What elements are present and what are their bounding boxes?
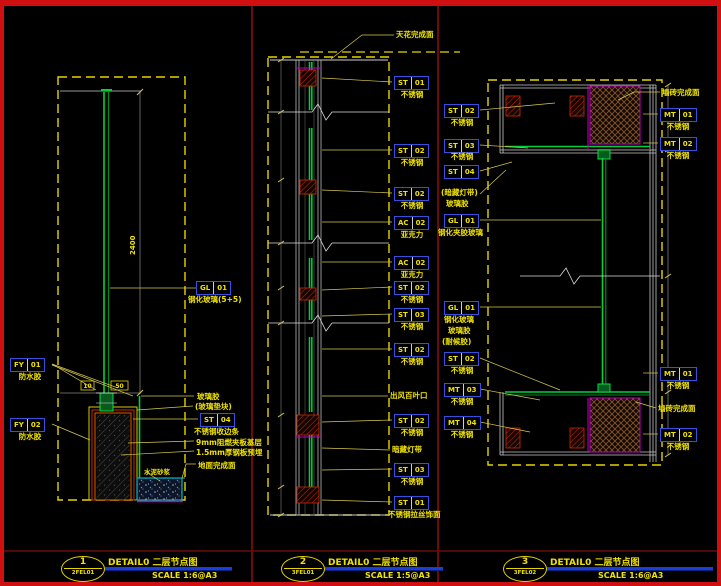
material-tag-fy01: FY01	[10, 358, 45, 372]
detail-number-bubble-1: 1 2FEL01	[61, 556, 105, 582]
material-tag: ST01	[394, 496, 429, 510]
material-tag: ST03	[394, 308, 429, 322]
detail-ref: 2FEL01	[62, 570, 104, 576]
tag-caption: 不锈钢	[440, 151, 484, 162]
material-tag: AC02	[394, 216, 429, 230]
material-tag: MT02	[660, 428, 697, 442]
annotation-steel: 1.5mm厚钢板预埋	[196, 447, 262, 458]
material-tag: ST02	[444, 104, 479, 118]
detail-number-bubble-2: 2 3FEL01	[281, 556, 325, 582]
tag-caption: 不锈钢	[390, 356, 434, 367]
detail-ref: 3FEL02	[504, 570, 546, 576]
annotation-floor: 地面完成面	[198, 460, 236, 471]
annotation-light: 暗藏灯带	[392, 444, 422, 455]
material-tag-fy02: FY02	[10, 418, 45, 432]
tag-caption: 不锈钢	[390, 321, 434, 332]
annotation-ceiling: 天花完成面	[396, 29, 434, 40]
annotation-mortar: 水泥砂浆	[144, 466, 170, 476]
material-tag: ST03	[394, 463, 429, 477]
material-tag: MT01	[660, 367, 697, 381]
tag-caption: 玻璃胶	[448, 325, 471, 336]
material-tag: ST02	[394, 414, 429, 428]
tag-caption: 不锈钢	[390, 294, 434, 305]
material-tag-gl01: GL01	[196, 281, 231, 295]
detail-number: 2	[282, 557, 324, 567]
bubble-divider	[506, 568, 544, 569]
tag-caption: 不锈钢	[390, 427, 434, 438]
title-underline-bar	[547, 567, 713, 570]
material-tag: GL01	[444, 214, 479, 228]
tag-caption: 不锈钢	[390, 476, 434, 487]
material-tag: ST02	[394, 281, 429, 295]
annotation-wall-top: 墙砖完成面	[662, 87, 700, 98]
material-tag: ST02	[394, 187, 429, 201]
tag-caption: 不锈钢	[390, 157, 434, 168]
bubble-divider	[64, 568, 102, 569]
tag-caption: 玻璃胶	[446, 198, 469, 209]
tag-caption: (耐候胶)	[442, 336, 471, 347]
material-tag: MT02	[660, 137, 697, 151]
tag-caption: 不锈钢	[656, 150, 700, 161]
detail-scale-2: SCALE 1:5@A3	[365, 571, 430, 580]
tag-caption: 防水胶	[6, 431, 54, 442]
drawing-linework: 2400 10 50	[0, 0, 721, 586]
tag-caption: 钢化玻璃(5+5)	[188, 294, 242, 305]
dim-b: 50	[115, 383, 123, 390]
title-underline-bar	[325, 567, 443, 570]
material-tag-st04: ST04	[200, 413, 235, 427]
tag-caption: 不锈钢	[440, 429, 484, 440]
detail-scale-3: SCALE 1:6@A3	[598, 571, 663, 580]
tag-caption: 不锈钢	[390, 200, 434, 211]
tag-caption: 不锈钢	[440, 365, 484, 376]
material-tag: MT01	[660, 108, 697, 122]
material-tag: ST02	[444, 352, 479, 366]
material-tag: ST02	[394, 144, 429, 158]
cad-sheet: 2400 10 50	[0, 0, 721, 586]
tag-caption: 不锈钢收边条	[194, 426, 239, 437]
tag-caption: 不锈钢	[440, 396, 484, 407]
material-tag: AC02	[394, 256, 429, 270]
annotation-wall-mid: 墙砖完成面	[658, 403, 696, 414]
detail-number: 3	[504, 557, 546, 567]
material-tag: ST02	[394, 343, 429, 357]
tag-caption: 不锈钢拉丝饰面	[388, 509, 441, 520]
material-tag: ST04	[444, 165, 479, 179]
tag-caption: 不锈钢	[390, 89, 434, 100]
tag-caption: (暗藏灯带)	[441, 187, 478, 198]
tag-caption: 防水胶	[6, 371, 54, 382]
detail-scale-1: SCALE 1:6@A3	[152, 571, 217, 580]
annotation-vent: 出风百叶口	[390, 390, 428, 401]
panel-3-linework	[480, 80, 671, 465]
material-tag: MT03	[444, 383, 481, 397]
tag-caption: 不锈钢	[656, 441, 700, 452]
tag-caption: 钢化夹胶玻璃	[438, 227, 483, 238]
detail-ref: 3FEL01	[282, 570, 324, 576]
tag-caption: 钢化玻璃	[444, 314, 474, 325]
panel-1-linework: 2400 10 50	[52, 77, 198, 502]
detail-number-bubble-3: 3 3FEL02	[503, 556, 547, 582]
tag-caption: 不锈钢	[656, 380, 700, 391]
annotation-pad: (玻璃垫块)	[195, 401, 232, 412]
material-tag: MT04	[444, 416, 481, 430]
tag-caption: 不锈钢	[440, 117, 484, 128]
material-tag: ST01	[394, 76, 429, 90]
tag-caption: 亚克力	[390, 229, 434, 240]
detail-number: 1	[62, 557, 104, 567]
title-underline-bar	[105, 567, 232, 570]
tag-caption: 亚克力	[390, 269, 434, 280]
bubble-divider	[284, 568, 322, 569]
material-tag: GL01	[444, 301, 479, 315]
tag-caption: 不锈钢	[656, 121, 700, 132]
dim-height: 2400	[129, 235, 137, 255]
